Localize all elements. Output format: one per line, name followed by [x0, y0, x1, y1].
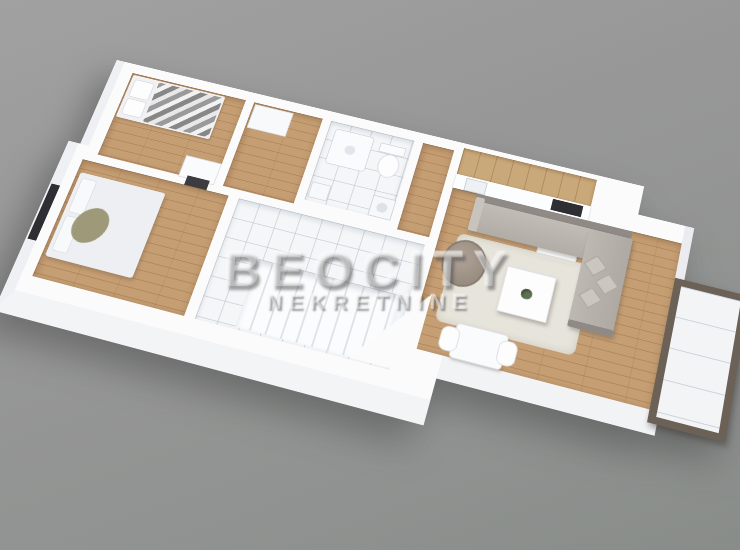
- potted-plant: [520, 288, 534, 301]
- bed-pillow: [121, 98, 147, 119]
- floorplan-render-canvas: BEOCITY NEKRETNINE: [0, 0, 740, 550]
- bed-pillow: [128, 79, 155, 101]
- washer-door: [375, 202, 388, 214]
- apartment-3d-model: [11, 62, 740, 518]
- shower-drain: [343, 144, 356, 155]
